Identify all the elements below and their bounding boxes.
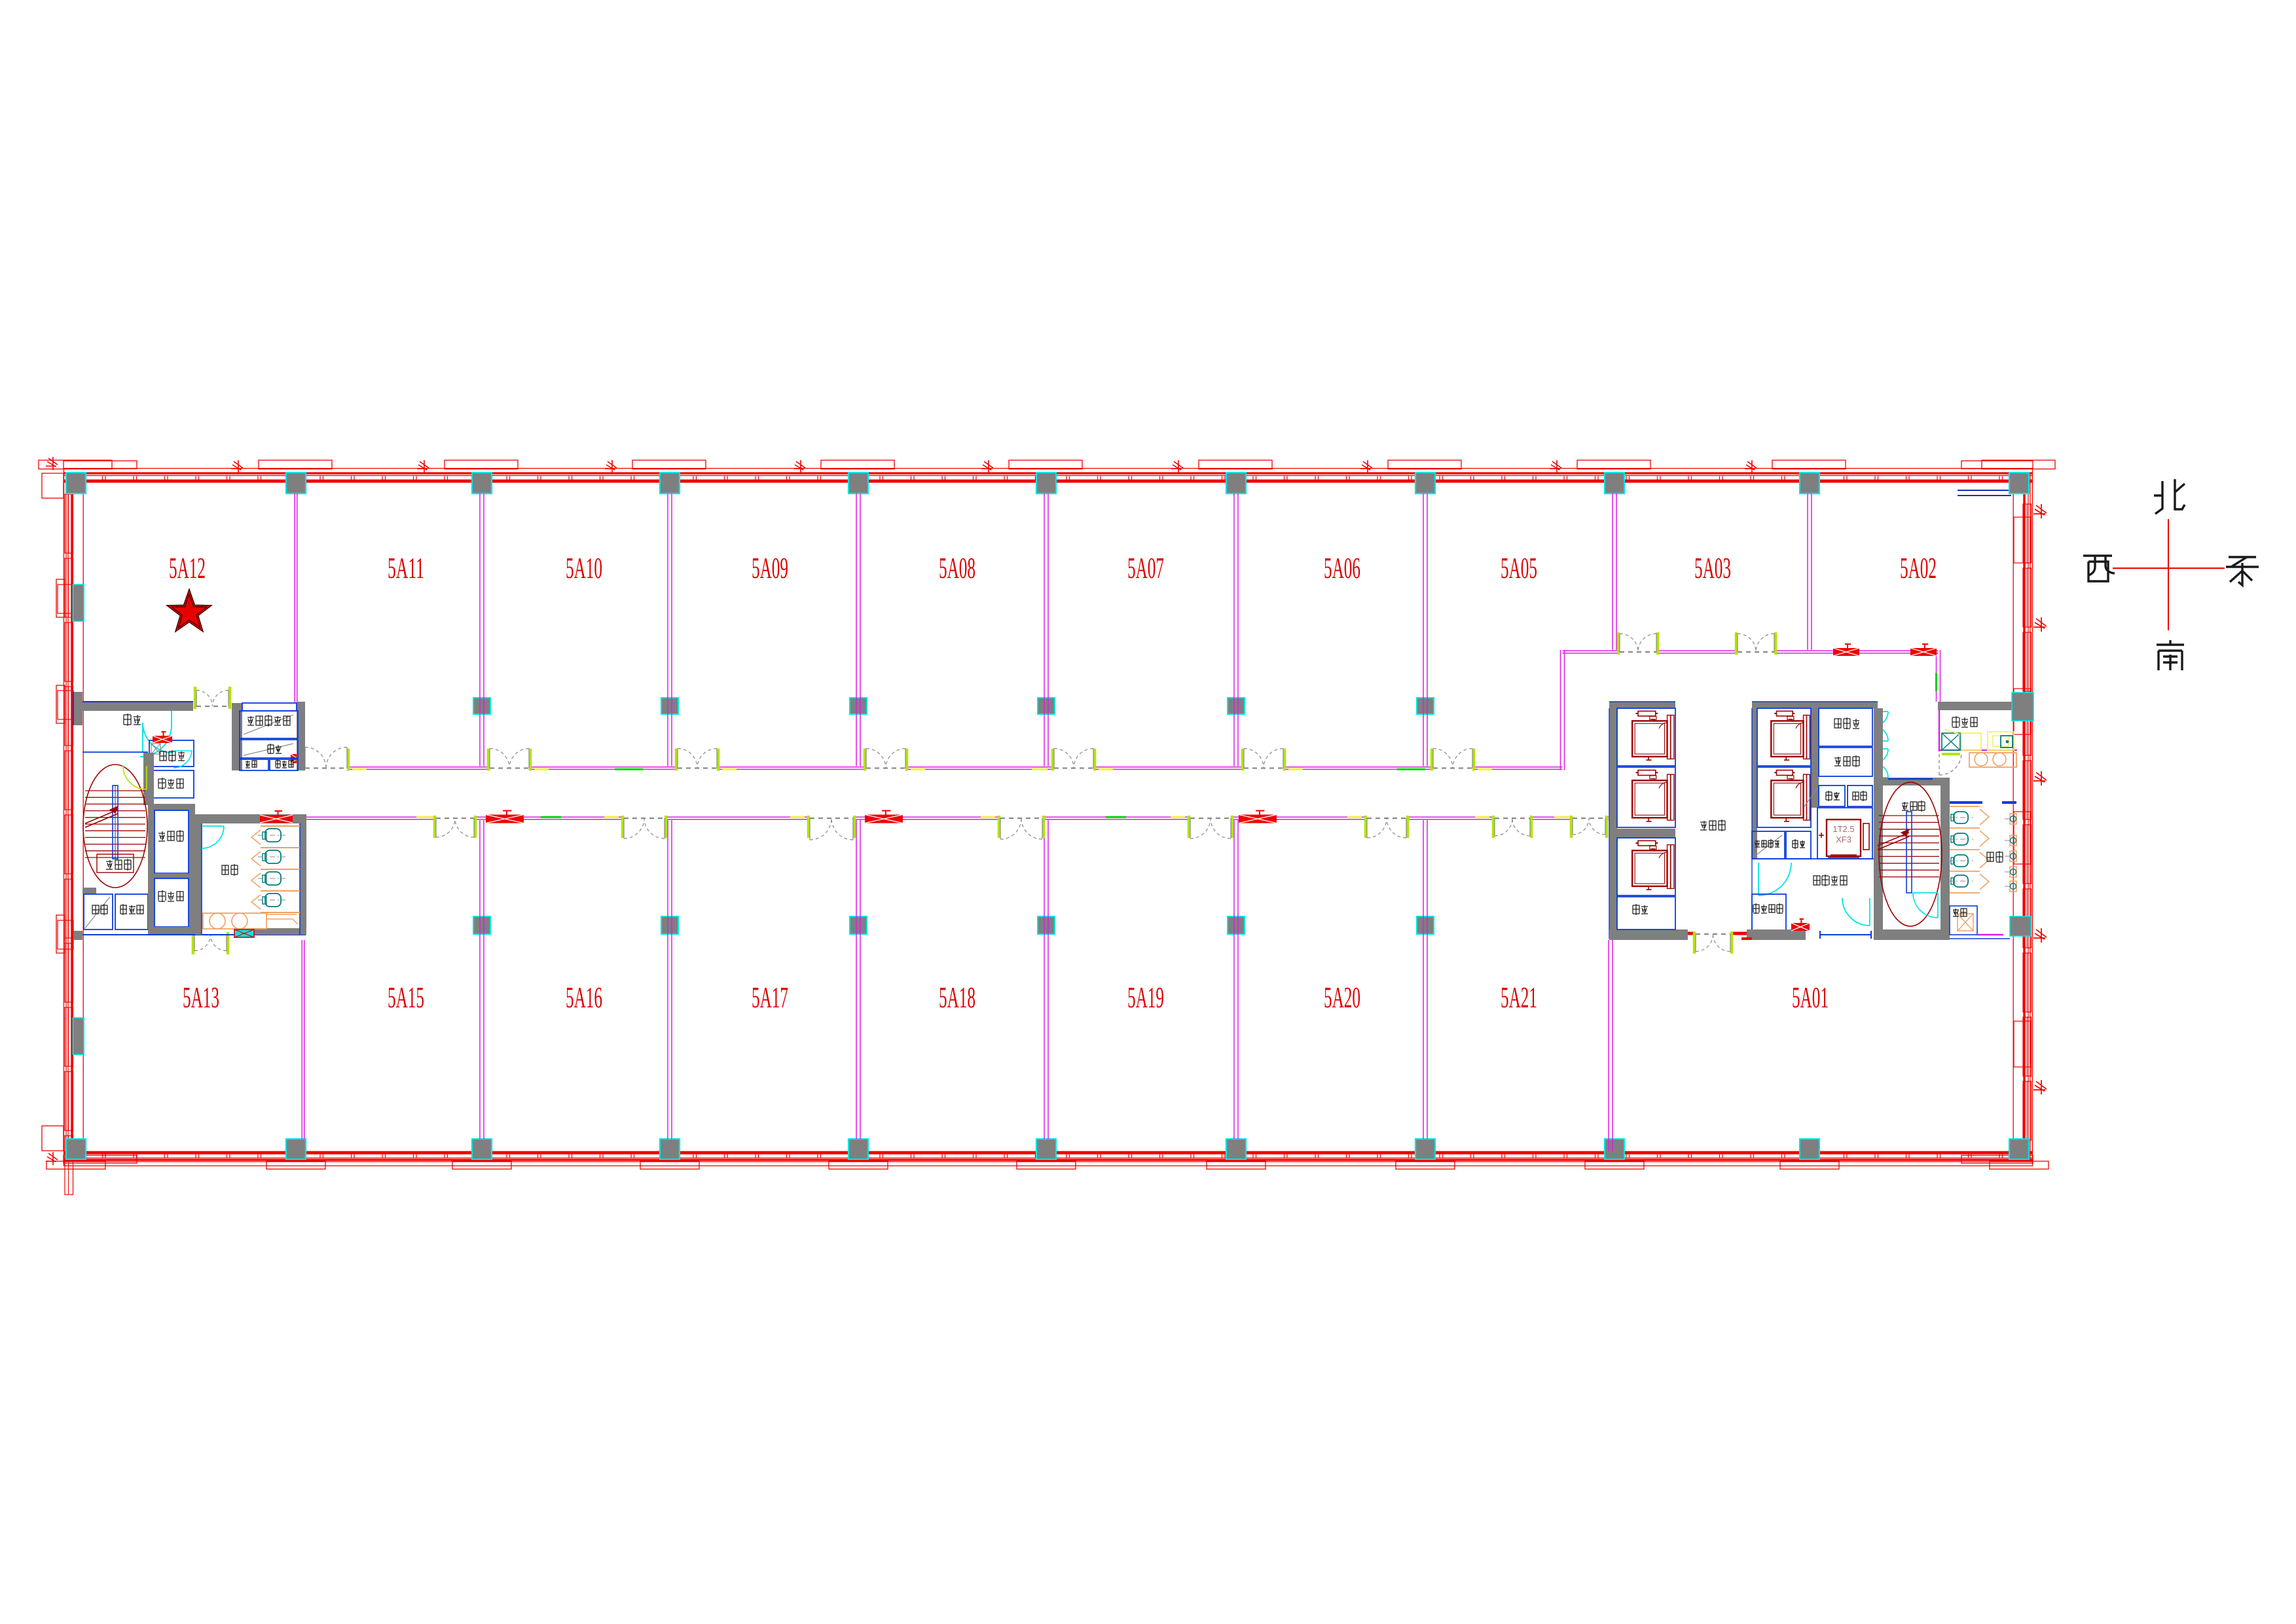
svg-text:1T2.5: 1T2.5: [1832, 824, 1854, 834]
svg-text:5A21: 5A21: [1501, 981, 1537, 1014]
svg-text:5A02: 5A02: [1900, 551, 1937, 585]
svg-text:5A07: 5A07: [1127, 551, 1164, 585]
svg-text:5A03: 5A03: [1694, 551, 1731, 585]
svg-text:5A10: 5A10: [566, 551, 602, 585]
svg-text:5A15: 5A15: [388, 981, 424, 1014]
svg-text:5A08: 5A08: [939, 551, 975, 585]
svg-text:5A12: 5A12: [169, 551, 206, 585]
svg-text:5A09: 5A09: [752, 551, 788, 585]
svg-text:5A06: 5A06: [1324, 551, 1360, 585]
svg-text:XF3: XF3: [1836, 835, 1851, 844]
svg-text:5A18: 5A18: [939, 981, 975, 1014]
svg-text:5A19: 5A19: [1127, 981, 1164, 1014]
svg-text:5A05: 5A05: [1501, 551, 1537, 585]
svg-text:5A16: 5A16: [566, 981, 602, 1014]
svg-text:5A11: 5A11: [388, 551, 424, 585]
svg-text:5A20: 5A20: [1324, 981, 1360, 1014]
svg-text:5A13: 5A13: [183, 981, 219, 1014]
svg-text:5A17: 5A17: [752, 981, 788, 1014]
svg-text:5A01: 5A01: [1792, 981, 1829, 1014]
